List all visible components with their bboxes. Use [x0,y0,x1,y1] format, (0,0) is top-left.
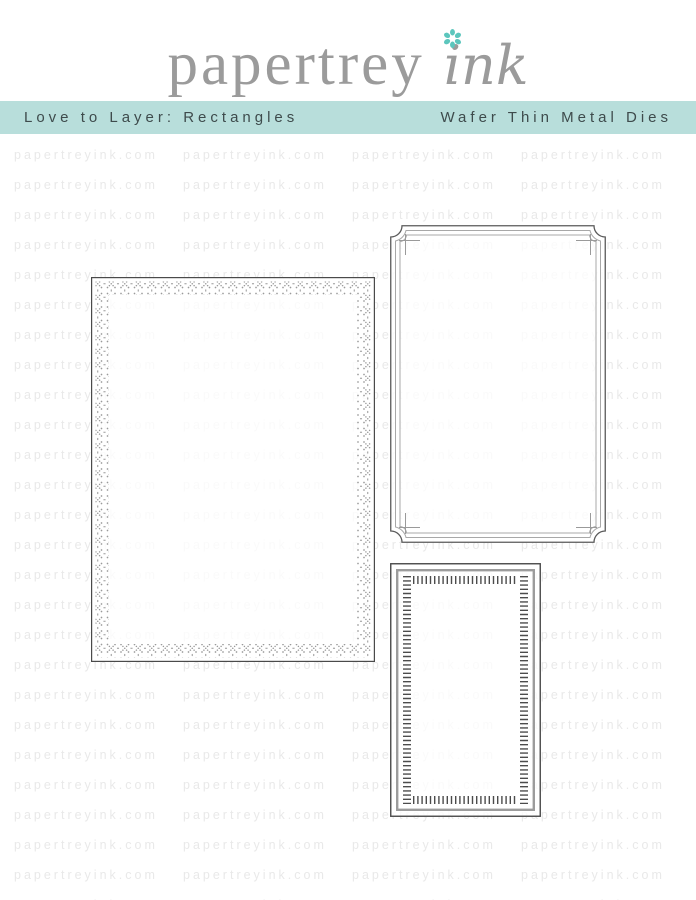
watermark-row: papertreyink.compapertreyink.compapertre… [0,830,696,860]
watermark-row: papertreyink.compapertreyink.compapertre… [0,710,696,740]
watermark-row: papertreyink.compapertreyink.compapertre… [0,140,696,170]
watermark-row: papertreyink.compapertreyink.compapertre… [0,890,696,900]
watermark-row: papertreyink.compapertreyink.compapertre… [0,770,696,800]
product-type-label: Wafer Thin Metal Dies [440,109,672,126]
ticket-corner-frame-die [390,225,606,543]
ladder-stitch-rectangle-die [390,563,541,817]
cross-stitch-rectangle-die [91,277,375,662]
watermark-row: papertreyink.compapertreyink.compapertre… [0,740,696,770]
watermark-row: papertreyink.compapertreyink.compapertre… [0,680,696,710]
flower-icon [443,29,462,48]
brand-serif-text: papertrey [167,34,424,95]
product-banner: Love to Layer: Rectangles Wafer Thin Met… [0,101,696,134]
logo-header: papertrey ink [0,0,696,101]
logo: papertrey ink [167,34,528,101]
product-name-label: Love to Layer: Rectangles [24,109,298,126]
watermark-row: papertreyink.compapertreyink.compapertre… [0,860,696,890]
watermark-row: papertreyink.compapertreyink.compapertre… [0,800,696,830]
watermark-row: papertreyink.compapertreyink.compapertre… [0,170,696,200]
brand-script-text: ink [440,39,529,93]
